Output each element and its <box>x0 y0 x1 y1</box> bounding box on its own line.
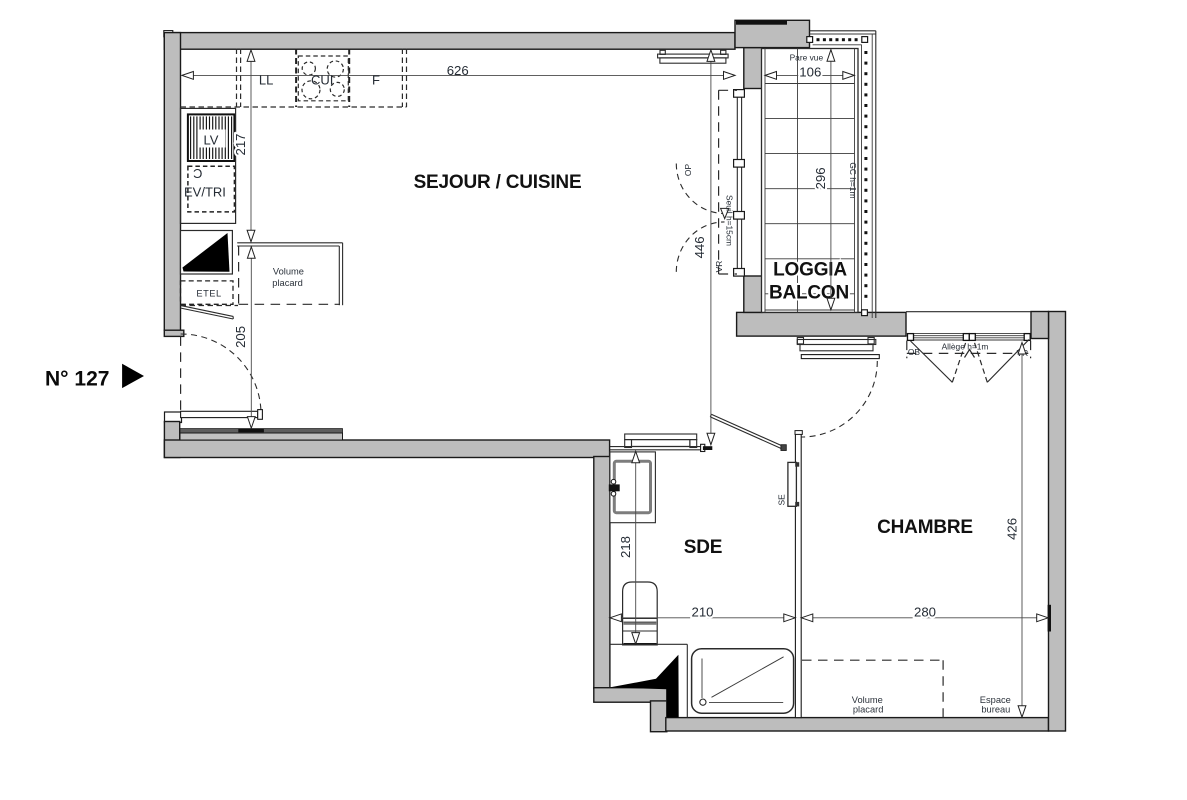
svg-text:CHAMBRE: CHAMBRE <box>877 517 973 538</box>
svg-text:GC h=1m: GC h=1m <box>848 162 858 198</box>
svg-text:ETEL: ETEL <box>196 289 221 299</box>
svg-text:OB: OB <box>908 347 921 357</box>
svg-text:Seuil h=15cm: Seuil h=15cm <box>725 195 735 246</box>
svg-text:BALCON: BALCON <box>769 283 849 304</box>
svg-text:Ɔ: Ɔ <box>193 166 202 181</box>
svg-text:OP: OP <box>683 164 693 177</box>
svg-text:CUI: CUI <box>311 73 333 88</box>
svg-text:446: 446 <box>692 236 707 258</box>
svg-text:VR: VR <box>714 261 724 273</box>
svg-text:LOGGIA: LOGGIA <box>773 260 847 281</box>
svg-text:SEJOUR / CUISINE: SEJOUR / CUISINE <box>414 172 582 193</box>
svg-text:placard: placard <box>853 704 884 714</box>
svg-text:218: 218 <box>618 536 633 558</box>
svg-text:SDE: SDE <box>684 537 722 558</box>
svg-text:EV/TRI: EV/TRI <box>184 185 226 200</box>
svg-text:SE: SE <box>777 494 787 506</box>
svg-text:205: 205 <box>233 326 248 348</box>
svg-text:106: 106 <box>799 64 821 79</box>
svg-text:LL: LL <box>259 73 273 88</box>
svg-text:426: 426 <box>1004 518 1019 540</box>
svg-text:Volume: Volume <box>273 267 304 277</box>
svg-text:placard: placard <box>272 278 303 288</box>
svg-text:296: 296 <box>813 167 828 189</box>
svg-text:280: 280 <box>914 604 936 619</box>
svg-text:Espace: Espace <box>980 695 1011 705</box>
svg-text:N° 127: N° 127 <box>45 368 109 391</box>
svg-text:Volume: Volume <box>852 695 883 705</box>
svg-text:bureau: bureau <box>981 704 1010 714</box>
svg-text:217: 217 <box>233 133 248 155</box>
svg-text:210: 210 <box>691 604 713 619</box>
svg-text:626: 626 <box>447 63 469 78</box>
svg-text:Pare vue: Pare vue <box>790 53 824 63</box>
svg-text:Allège h=1m: Allège h=1m <box>942 342 989 352</box>
svg-text:LV: LV <box>204 133 219 148</box>
svg-text:F: F <box>372 73 380 88</box>
